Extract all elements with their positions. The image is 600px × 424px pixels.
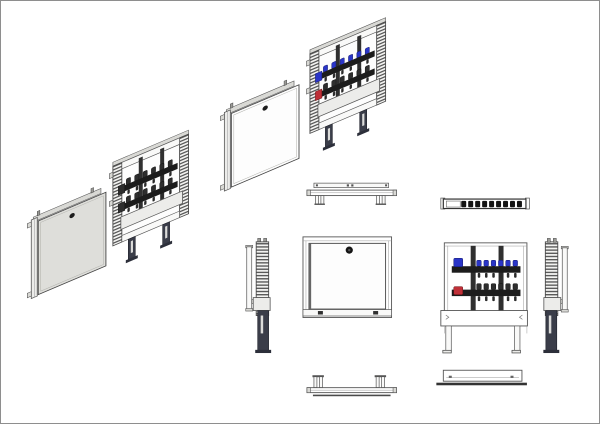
door-bottom-line xyxy=(313,395,391,397)
bottom-rail xyxy=(303,310,392,316)
valve-knob xyxy=(514,296,516,301)
hinge-peg xyxy=(230,103,233,109)
leg-foot xyxy=(443,350,451,353)
valve-knob xyxy=(468,201,473,207)
frame-leg xyxy=(446,326,451,351)
mounting-plate xyxy=(441,311,528,326)
valve-knob xyxy=(491,284,496,290)
mount-tab xyxy=(27,292,31,298)
manifold-plan-box xyxy=(446,201,460,207)
valve-knob xyxy=(500,296,502,301)
support-strap xyxy=(471,246,476,311)
side-view-right xyxy=(543,238,568,353)
valve-knob xyxy=(510,201,515,207)
frame-leg xyxy=(514,326,519,351)
mount-tab xyxy=(27,222,31,228)
valve-knob xyxy=(485,296,487,301)
mount-tab xyxy=(220,184,224,190)
valve-knob xyxy=(498,284,503,290)
door-edge-strip xyxy=(562,248,567,311)
top-view-manifold xyxy=(441,198,530,209)
plate-profile xyxy=(253,298,270,311)
hinge-peg xyxy=(284,80,287,86)
valve-knob xyxy=(513,284,518,290)
hinge-peg xyxy=(37,210,40,216)
leg-edge xyxy=(382,377,385,388)
leg-edge xyxy=(315,196,318,204)
door-face xyxy=(38,192,106,294)
valve-knob xyxy=(506,284,511,290)
valve-knob xyxy=(507,296,509,301)
drawing-canvas xyxy=(0,0,600,424)
frame-rail-right xyxy=(180,134,189,217)
frame-bottom-body xyxy=(443,370,522,381)
door-edge-strip xyxy=(247,247,252,310)
valve-knob xyxy=(507,273,509,278)
wall-bracket xyxy=(109,200,112,206)
top-view-cabinet xyxy=(307,183,397,205)
valve-knob xyxy=(475,201,480,207)
drawing-sheet xyxy=(1,1,599,423)
iso-door-gray xyxy=(27,182,106,300)
valve-knob xyxy=(514,273,516,278)
valve-knob xyxy=(478,296,480,301)
wall-bracket xyxy=(306,88,309,94)
iso-frame-valves xyxy=(306,18,385,158)
valve-block-row xyxy=(461,201,522,207)
valve-knob xyxy=(489,201,494,207)
manifold-bar-top xyxy=(452,266,521,272)
valve-knob xyxy=(461,201,466,207)
hinge-peg xyxy=(91,188,94,194)
valve-knob xyxy=(513,260,518,266)
door-front xyxy=(309,243,386,309)
bottom-view-cabinet xyxy=(307,375,397,396)
valve-knob xyxy=(492,296,494,301)
plate-profile xyxy=(544,298,561,311)
valve-knob xyxy=(496,201,501,207)
iso-frame-plain xyxy=(109,130,188,270)
leg-edge xyxy=(321,196,324,204)
wall-bracket xyxy=(109,172,112,178)
return-end-valve xyxy=(454,287,463,295)
baseline xyxy=(436,383,527,386)
leg-edge xyxy=(319,377,322,388)
leg-edge xyxy=(377,196,380,204)
valve-knob xyxy=(503,201,508,207)
leg-edge xyxy=(376,377,379,388)
iso-door-white xyxy=(220,75,299,193)
supply-end-valve xyxy=(454,258,463,266)
front-view-open xyxy=(441,243,528,353)
mount-tab xyxy=(220,114,224,120)
valve-knob xyxy=(484,284,489,290)
bottom-view-manifold xyxy=(436,370,527,385)
valve-knob xyxy=(492,273,494,278)
leg-edge xyxy=(314,377,317,388)
valve-knob xyxy=(477,260,482,266)
leg-foot xyxy=(255,350,271,353)
valve-knob xyxy=(485,273,487,278)
side-view-left xyxy=(246,238,271,353)
wall-bracket xyxy=(306,60,309,66)
door-face xyxy=(231,85,299,187)
valve-knob xyxy=(500,273,502,278)
leg-foot xyxy=(512,350,520,353)
valve-knob xyxy=(517,201,522,207)
valve-knob xyxy=(477,284,482,290)
front-view-closed xyxy=(303,237,392,318)
leg-foot xyxy=(543,350,559,353)
frame-front xyxy=(444,243,527,321)
valve-knob xyxy=(478,273,480,278)
valve-knob xyxy=(482,201,487,207)
valve-knob xyxy=(506,260,511,266)
valve-knob xyxy=(498,260,503,266)
leg-edge xyxy=(382,196,385,204)
valve-knob xyxy=(484,260,489,266)
valve-knob xyxy=(491,260,496,266)
frame-rail-right xyxy=(377,22,386,105)
